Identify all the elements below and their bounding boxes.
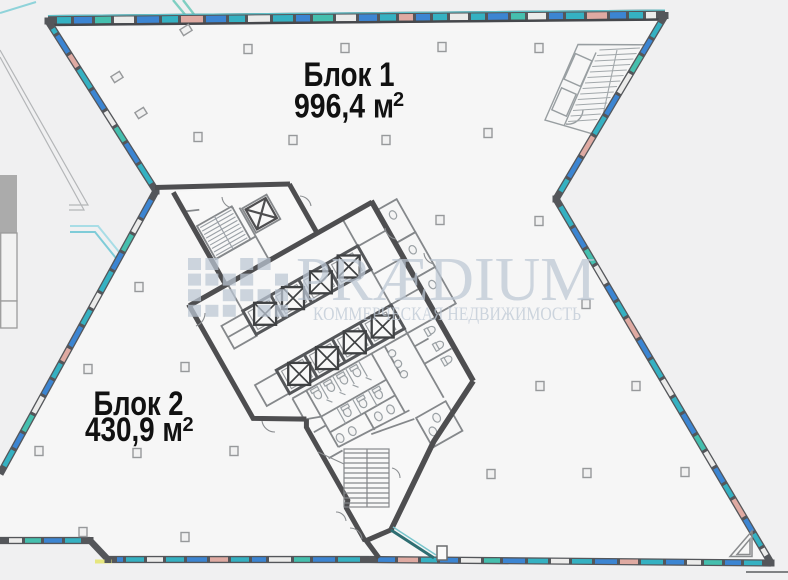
svg-text:430,9 м: 430,9 м: [85, 411, 183, 449]
svg-text:КОММЕРЧЕСКАЯ НЕДВИЖИМОСТЬ: КОММЕРЧЕСКАЯ НЕДВИЖИМОСТЬ: [313, 304, 581, 325]
svg-text:996,4 м: 996,4 м: [294, 88, 394, 126]
svg-text:2: 2: [183, 414, 194, 436]
svg-text:2: 2: [393, 89, 404, 111]
